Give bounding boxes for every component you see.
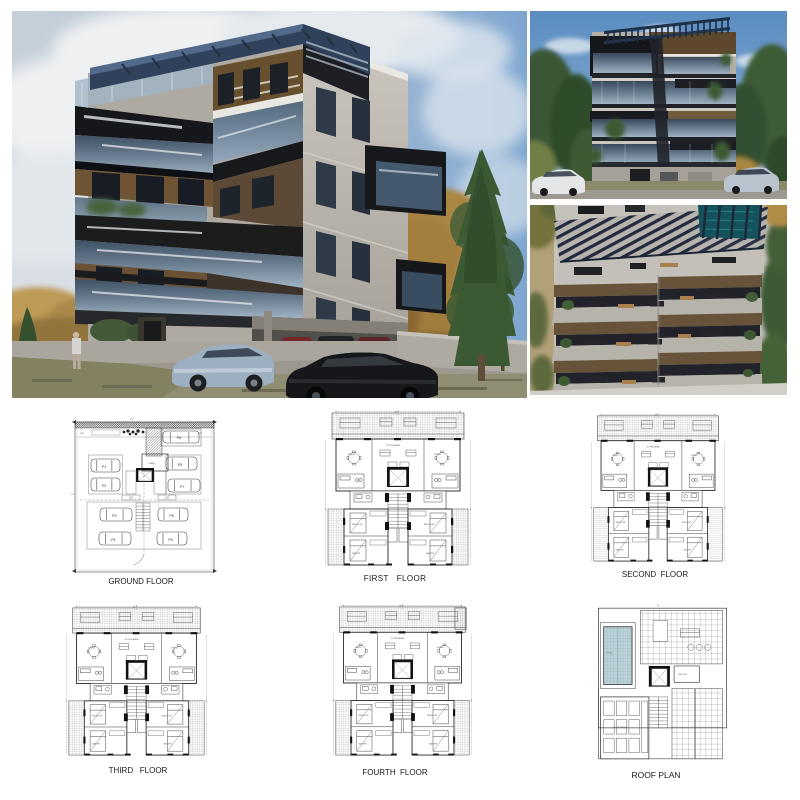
svg-text:DINING: DINING [691, 455, 698, 457]
svg-text:DINING: DINING [355, 647, 362, 649]
svg-text:MASTER: MASTER [92, 742, 101, 745]
svg-text:MASTER: MASTER [164, 742, 173, 745]
svg-text:BEDROOM: BEDROOM [427, 715, 437, 717]
svg-text:DINING: DINING [437, 647, 444, 649]
svg-text:SITTING AREA: SITTING AREA [386, 444, 400, 447]
svg-text:MASTER: MASTER [359, 742, 367, 745]
svg-text:SITTING AREA: SITTING AREA [391, 637, 405, 640]
svg-text:DINING: DINING [171, 648, 178, 650]
svg-text:MASTER: MASTER [684, 549, 692, 552]
svg-text:BEDROOM: BEDROOM [424, 524, 435, 526]
svg-text:B: B [657, 605, 659, 607]
svg-text:BEDROOM: BEDROOM [616, 522, 626, 524]
svg-text:P4: P4 [111, 538, 115, 542]
svg-text:M/ROOM: M/ROOM [678, 674, 687, 676]
svg-text:BEDROOM: BEDROOM [162, 715, 172, 717]
svg-text:P5: P5 [178, 463, 182, 467]
svg-text:P8: P8 [177, 436, 181, 440]
svg-text:SITTING AREA: SITTING AREA [125, 638, 139, 641]
svg-text:P5: P5 [168, 538, 172, 542]
svg-text:MASTER: MASTER [616, 549, 624, 552]
svg-text:DINING: DINING [434, 454, 441, 456]
svg-text:POOL: POOL [607, 653, 614, 655]
svg-text:BEDROOM: BEDROOM [92, 715, 102, 717]
svg-text:P7: P7 [180, 485, 184, 489]
svg-text:BEDROOM: BEDROOM [682, 522, 692, 524]
svg-text:DINING: DINING [612, 455, 619, 457]
svg-text:P1: P1 [102, 465, 106, 469]
svg-text:DINING: DINING [348, 454, 355, 456]
svg-text:LOBBY: LOBBY [148, 463, 156, 465]
svg-text:MASTER: MASTER [352, 552, 361, 555]
svg-text:DINING: DINING [88, 648, 95, 650]
svg-text:SOLAR PANELS: SOLAR PANELS [613, 726, 628, 729]
svg-text:MASTER: MASTER [426, 552, 435, 555]
svg-text:BEDROOM: BEDROOM [359, 715, 369, 717]
svg-text:4.50: 4.50 [130, 419, 135, 421]
svg-text:BEDROOM: BEDROOM [352, 524, 363, 526]
svg-text:P6: P6 [169, 514, 173, 518]
svg-text:CAR: CAR [80, 432, 84, 435]
svg-text:P3: P3 [112, 514, 116, 518]
svg-text:SITTING AREA: SITTING AREA [647, 445, 660, 448]
svg-text:MASTER: MASTER [429, 742, 437, 745]
svg-text:P2: P2 [102, 484, 106, 488]
